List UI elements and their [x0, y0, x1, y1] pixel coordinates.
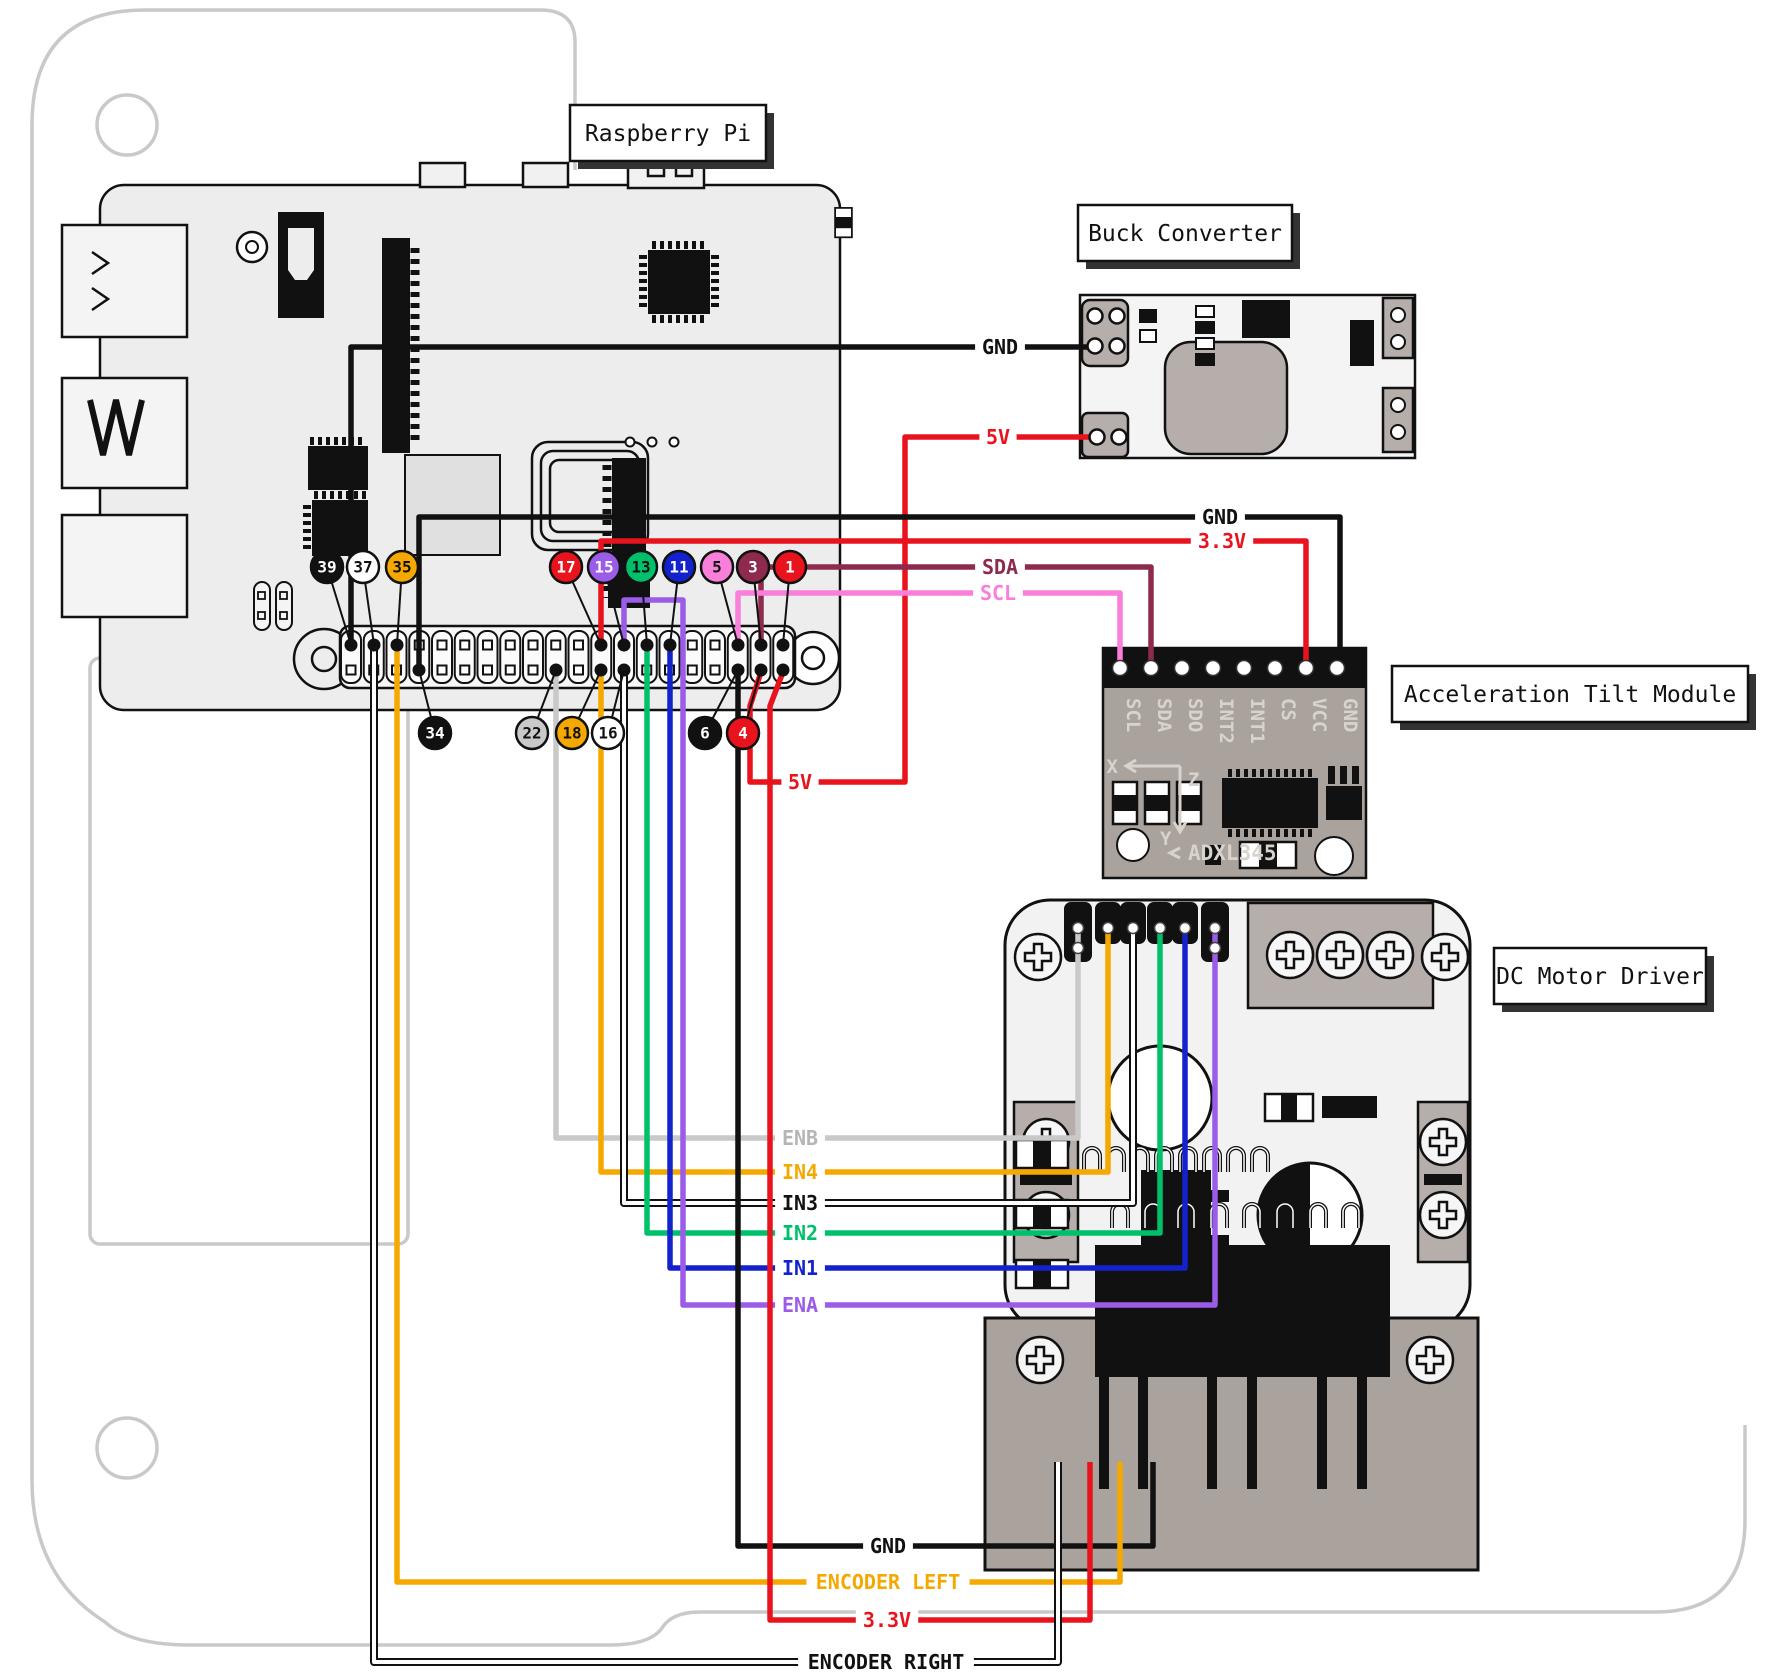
pi-usb-port-1 [62, 225, 187, 337]
wire-label-ena: ENA [782, 1293, 818, 1317]
gpio-badge-label-15: 15 [594, 558, 613, 577]
driver-terminal-left-bar [1020, 1174, 1072, 1185]
wire-label-in1: IN1 [782, 1256, 818, 1280]
gpio-badge-label-17: 17 [556, 558, 575, 577]
gpio-pin-hole [711, 641, 720, 650]
tilt-axis-x: X [1107, 756, 1119, 778]
right-terminal-screw-1 [1420, 1119, 1466, 1165]
tilt-smd-1 [1113, 782, 1137, 824]
gpio-badge-label-4: 4 [738, 724, 748, 743]
driver-power-ic [1095, 1245, 1390, 1377]
buck-smd-3 [1196, 338, 1214, 349]
gpio-badge-label-16: 16 [598, 724, 617, 743]
pi-chip-b [312, 500, 368, 556]
driver-header-hole [1073, 923, 1084, 934]
gpio-header [340, 626, 795, 688]
gpio-pin-hole [688, 666, 697, 675]
wire-label-sda: SDA [982, 555, 1018, 579]
gpio-pin-hole [438, 666, 447, 675]
gpio-badge-label-6: 6 [700, 724, 710, 743]
tilt-transistor-leg2 [1340, 766, 1347, 784]
buck-smd-5 [1140, 310, 1156, 322]
tilt-pin-label-scl: SCL [1122, 698, 1144, 732]
tilt-pin-label-sdo: SDO [1184, 698, 1206, 732]
wire-label-enb: ENB [782, 1126, 818, 1150]
gpio-pin-hole [529, 666, 538, 675]
gpio-pin-hole [483, 666, 492, 675]
driver-header-hole [1180, 923, 1191, 934]
gpio-pin-hole [506, 666, 515, 675]
pi-led-2 [648, 438, 657, 447]
tilt-transistor [1326, 786, 1362, 820]
driver-smd-b [1322, 1096, 1377, 1118]
gpio-badge-label-18: 18 [562, 724, 581, 743]
pi-camera-hole-inner [246, 241, 258, 253]
wire-enb [556, 672, 1078, 1138]
wire-label-5v: 5V [986, 425, 1010, 449]
gpio-pin-hole [551, 641, 560, 650]
buck-pin-hole [1090, 430, 1105, 445]
buck-smd-1 [1196, 306, 1214, 317]
gpio-badge-label-39: 39 [317, 558, 336, 577]
pi-hdmi-port [523, 163, 568, 187]
tilt-chip-label: ADXL345 [1188, 841, 1277, 865]
chassis-slot [90, 658, 408, 1244]
gpio-badge-label-34: 34 [425, 724, 444, 743]
wiring-diagram-canvas: SCLSDASDOINT2INT1CSVCCGND X Z Y ADXL345 [0, 0, 1781, 1678]
tilt-pin-label-cs: CS [1277, 698, 1299, 721]
gpio-badge-label-11: 11 [669, 558, 688, 577]
driver-header-hole [1073, 943, 1084, 954]
buck-smd-6 [1140, 330, 1156, 342]
tilt-pin-int1 [1237, 661, 1252, 676]
tilt-axis-y: Y [1160, 828, 1172, 850]
tilt-transistor-leg1 [1328, 766, 1335, 784]
gpio-pin-hole [483, 641, 492, 650]
pi-hole-left-inner [312, 647, 336, 671]
driver-header-hole [1155, 923, 1166, 934]
pi-hole-right-inner [802, 647, 824, 669]
driver-screw-top-right [1422, 934, 1468, 980]
wiring-diagram-page: SCLSDASDOINT2INT1CSVCCGND X Z Y ADXL345 [0, 0, 1781, 1678]
wire-label-gnd-buck: GND [982, 335, 1018, 359]
tilt-hole-right [1315, 837, 1353, 875]
title-tilt-module: Acceleration Tilt Module [1404, 682, 1736, 708]
gpio-badge-label-35: 35 [392, 558, 411, 577]
gpio-badge-label-5: 5 [712, 558, 722, 577]
gpio-badge-label-3: 3 [748, 558, 758, 577]
chassis-hole-top-left [97, 95, 157, 155]
raspberry-pi-board [62, 156, 840, 710]
driver-screw-top-left [1015, 934, 1061, 980]
chassis-hole-bottom-left [97, 1418, 157, 1478]
wire-label-in4: IN4 [782, 1160, 818, 1184]
driver-terminal-right-bar [1424, 1174, 1462, 1185]
buck-pin-hole [1110, 339, 1125, 354]
heatsink-screw-right [1407, 1337, 1453, 1383]
tilt-smd-2 [1145, 782, 1169, 824]
tilt-transistor-leg3 [1352, 766, 1359, 784]
wire-label-in3: IN3 [782, 1191, 818, 1215]
title-dc-motor-driver: DC Motor Driver [1496, 964, 1704, 990]
buck-smd-2 [1196, 322, 1214, 333]
pi-jumper-1 [254, 582, 270, 630]
terminal-screw-2 [1317, 932, 1363, 978]
wire-label-gnd-tilt: GND [1202, 505, 1238, 529]
tilt-pin-label-sda: SDA [1153, 698, 1175, 733]
title-raspberry-pi: Raspberry Pi [585, 121, 751, 147]
pi-led-1 [626, 438, 635, 447]
pi-chip-a [308, 446, 368, 490]
gpio-pin-hole [460, 641, 469, 650]
buck-hole [1391, 335, 1405, 349]
tilt-pin-label-gnd: GND [1339, 698, 1361, 732]
camera-connector-leg-right [308, 292, 317, 314]
pi-av-jack [420, 163, 465, 187]
pi-led-3 [670, 438, 679, 447]
buck-component [1350, 320, 1374, 366]
tilt-pin-scl [1113, 661, 1128, 676]
driver-smd-a-center [1281, 1094, 1297, 1121]
wire-label-in2: IN2 [782, 1221, 818, 1245]
buck-hole [1391, 425, 1405, 439]
gpio-badge-label-22: 22 [522, 724, 541, 743]
buck-pin-hole [1088, 339, 1103, 354]
gpio-pin-hole [460, 666, 469, 675]
camera-connector-cutout [288, 228, 314, 280]
wire-label-3v3-bottom: 3.3V [863, 1608, 911, 1632]
gpio-pin-connected [777, 664, 790, 677]
gpio-pin-hole [347, 666, 356, 675]
buck-chip [1242, 300, 1290, 338]
buck-hole [1391, 308, 1405, 322]
gpio-pin-hole [529, 641, 538, 650]
buck-smd [835, 208, 852, 237]
pi-jumper-2 [276, 582, 292, 630]
tilt-header [1103, 648, 1366, 688]
driver-smd-left-1 [1016, 1140, 1068, 1168]
tilt-pin-int2 [1206, 661, 1221, 676]
gpio-pin-hole [711, 666, 720, 675]
tilt-pin-sdo [1175, 661, 1190, 676]
wire-enc-right [374, 643, 1058, 1662]
wire-label-gnd-bottom: GND [870, 1534, 906, 1558]
camera-connector-leg-left [285, 292, 294, 314]
tilt-pin-cs [1268, 661, 1283, 676]
tilt-pin-label-int2: INT2 [1215, 698, 1237, 744]
terminal-screw-1 [1267, 932, 1313, 978]
title-box-dc-motor-driver: DC Motor Driver [1494, 948, 1714, 1012]
buck-smd-4 [1196, 354, 1214, 365]
gpio-pin-hole [688, 641, 697, 650]
wire-label-enc-left: ENCODER LEFT [816, 1570, 961, 1594]
gpio-pin-hole [574, 641, 583, 650]
buck-pin-hole [1110, 309, 1125, 324]
gpio-badge-label-13: 13 [631, 558, 650, 577]
terminal-screw-3 [1367, 932, 1413, 978]
gpio-pin-hole [506, 641, 515, 650]
tilt-pin-label-vcc: VCC [1308, 698, 1330, 732]
tilt-pin-label-int1: INT1 [1246, 698, 1268, 744]
tilt-pin-gnd [1330, 661, 1345, 676]
pi-chip-c [648, 250, 710, 314]
wire-label-3v3-tilt: 3.3V [1198, 529, 1246, 553]
gpio-badge-label-37: 37 [353, 558, 372, 577]
gpio-pin-hole [438, 641, 447, 650]
wire-label-scl: SCL [980, 581, 1016, 605]
tilt-pin-sda [1144, 661, 1159, 676]
gpio-badge-label-1: 1 [785, 558, 795, 577]
tilt-pin-vcc [1299, 661, 1314, 676]
gpio-pin-hole [574, 666, 583, 675]
driver-header-hole [1210, 943, 1221, 954]
tilt-module-board: SCLSDASDOINT2INT1CSVCCGND X Z Y ADXL345 [1103, 648, 1366, 878]
buck-hole [1391, 398, 1405, 412]
tilt-axis-z: Z [1188, 769, 1199, 791]
wire-label-enc-right: ENCODER RIGHT [808, 1650, 965, 1674]
heatsink-screw-left [1017, 1337, 1063, 1383]
buck-pin-hole [1088, 309, 1103, 324]
title-box-tilt-module: Acceleration Tilt Module [1392, 666, 1756, 730]
driver-header-hole [1128, 923, 1139, 934]
tilt-ic [1222, 778, 1318, 828]
buck-pin-hole [1112, 430, 1127, 445]
title-box-buck-converter: Buck Converter [1078, 205, 1300, 269]
pi-ethernet-port [62, 515, 187, 617]
buck-inductor [1165, 342, 1287, 454]
driver-header-hole [1103, 923, 1114, 934]
wire-label-5v: 5V [788, 770, 812, 794]
driver-smd-left-3 [1016, 1260, 1068, 1288]
title-buck-converter: Buck Converter [1088, 221, 1282, 247]
driver-header-hole [1210, 923, 1221, 934]
right-terminal-screw-2 [1420, 1192, 1466, 1238]
title-box-raspberry-pi: Raspberry Pi [570, 105, 774, 169]
tilt-hole-left [1117, 829, 1149, 861]
wire-enc-right-outline [374, 643, 1058, 1662]
